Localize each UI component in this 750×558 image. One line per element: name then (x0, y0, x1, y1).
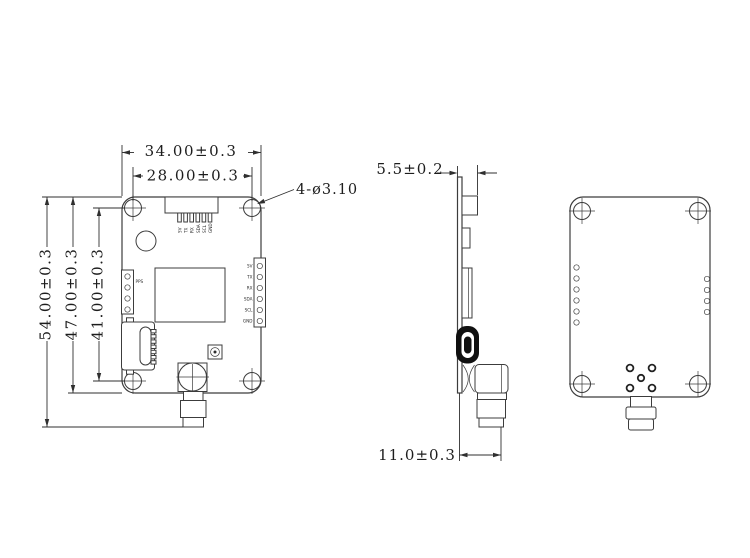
header-pin-label: SCL (245, 308, 254, 313)
sma-side-barrel (477, 400, 506, 419)
dim-side-thickness: 5.5±0.2 (376, 160, 497, 195)
sma-connector-side (463, 365, 508, 428)
sma-side-end (479, 418, 504, 427)
front-view: 5V TX RX SDA SCL GND PPS (120, 195, 266, 427)
ufl-center-pin (214, 351, 217, 354)
sma-neck (631, 397, 652, 408)
usb-pins (151, 330, 156, 365)
top-header-pin (202, 213, 206, 222)
side-view (457, 166, 509, 427)
top-pin-label: GND (208, 223, 213, 233)
top-pin-label: 5V (178, 227, 183, 233)
side-top-header (462, 196, 478, 215)
usb-side-tongue (465, 337, 472, 353)
usb-connector-side (457, 327, 479, 364)
top-header-body (165, 197, 218, 213)
header-pin-label: RX (247, 286, 253, 291)
ufl-connector (208, 345, 222, 359)
pps-label: PPS (136, 279, 144, 284)
usb-connector-front (122, 318, 157, 374)
top-header-pin (196, 213, 200, 222)
dim-height-overall-text: 54.00±0.3 (37, 248, 55, 341)
header-pin-label: 5V (247, 264, 253, 269)
header-pin-label: GND (243, 319, 253, 324)
dim-width-hole-spacing-text: 28.00±0.3 (147, 167, 240, 185)
sma-side-flange (478, 393, 507, 400)
dim-sma-length-text: 11.0±0.3 (378, 446, 456, 464)
sma-end (183, 418, 204, 428)
back-view (569, 197, 711, 430)
side-right-header (462, 268, 472, 318)
sma-end (629, 419, 654, 430)
sma-solder-joint (463, 365, 475, 392)
top-pin-label: SCL (202, 224, 207, 233)
dim-height-overall: 54.00±0.3 (37, 197, 55, 427)
sma-body (626, 407, 656, 419)
dim-height-hole-spacing-text: 41.00±0.3 (89, 248, 107, 341)
sma-body (181, 401, 207, 418)
sma-connector-front (177, 363, 210, 427)
header-pin-label: SDA (244, 297, 253, 302)
round-component (136, 231, 156, 251)
sma-connector-back (626, 397, 656, 431)
back-board-outline (570, 197, 710, 397)
dim-height-board: 47.00±0.3 (63, 197, 81, 393)
top-pin-label: SDA (196, 224, 201, 233)
top-header-pin (208, 213, 212, 222)
top-header-pin (184, 213, 188, 222)
dim-width-hole-spacing: 28.00±0.3 (133, 167, 252, 202)
pps-connector-body (122, 270, 134, 314)
top-pin-label: RX (190, 227, 195, 233)
sma-side-body (475, 365, 508, 394)
top-header-pin (178, 213, 182, 222)
technical-drawing-canvas: 5V TX RX SDA SCL GND PPS (0, 0, 750, 558)
sma-neck (184, 392, 204, 401)
dimensions: 34.00±0.3 28.00±0.3 4-ø3.10 (37, 142, 502, 464)
dim-side-thickness-text: 5.5±0.2 (376, 160, 443, 178)
side-component (462, 228, 470, 248)
usb-tongue (140, 327, 151, 365)
header-pin-label: TX (246, 275, 253, 280)
dim-hole-callout: 4-ø3.10 (257, 182, 358, 204)
dim-width-overall-text: 34.00±0.3 (145, 142, 238, 160)
dim-height-board-text: 47.00±0.3 (63, 248, 81, 341)
top-pin-label: TX (184, 227, 189, 234)
dim-height-hole-spacing: 41.00±0.3 (89, 208, 107, 381)
shield-module (155, 268, 225, 322)
dim-hole-callout-text: 4-ø3.10 (296, 182, 358, 198)
top-header-pin (190, 213, 194, 222)
